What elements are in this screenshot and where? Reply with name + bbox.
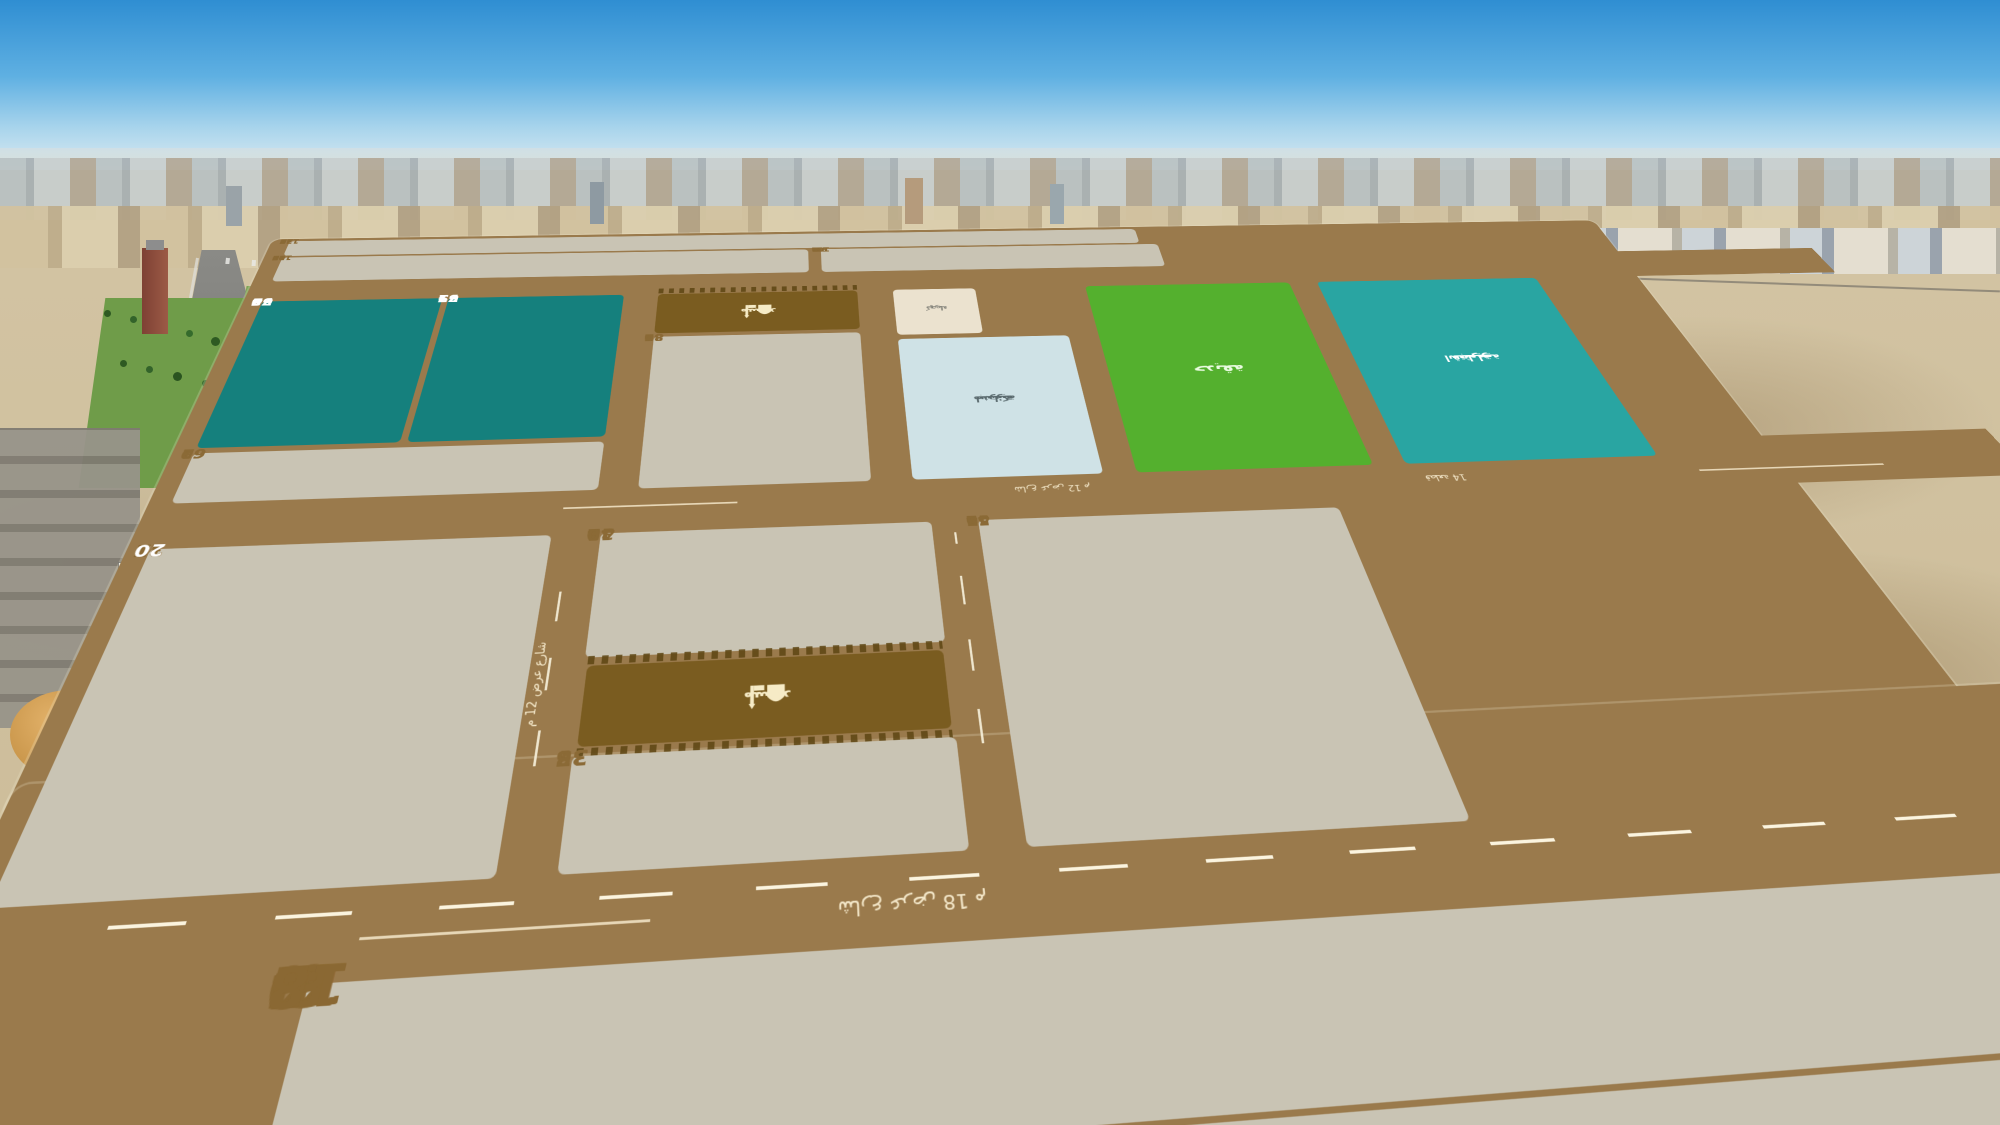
aerial-masterplan-image: 123124125126127128129130131132133134135 …: [0, 0, 2000, 1125]
school-plot[interactable]: مدرسةابتدائيةمشتركة: [898, 335, 1103, 479]
park-label: حديقة: [1191, 362, 1247, 378]
highrise-tower: [590, 182, 604, 224]
plot-block-19-34: 33343132293027282526232421221920: [0, 535, 552, 908]
mosque-label: مسجد: [743, 687, 791, 707]
masterplan-overlay: 123124125126127128129130131132133134135 …: [0, 218, 2000, 1125]
utility-plot[interactable]: محطةكهرباء: [893, 288, 983, 335]
plot-block-39-44: 434441423940: [585, 522, 945, 658]
highrise-tower: [1050, 184, 1064, 224]
highrise-tower: [226, 186, 242, 226]
plot-block-80-89: 89888786858483828180: [638, 332, 871, 488]
road-extension: [1586, 248, 1835, 277]
plot-number: 121: [271, 254, 293, 261]
sky: [0, 0, 2000, 170]
plot-number: 106: [812, 246, 830, 253]
plot-number: 40: [586, 524, 616, 543]
street-label: قطعة 14: [1423, 472, 1468, 483]
plot-number: 80: [644, 331, 665, 342]
trees-row: [104, 310, 111, 317]
mosque-plot[interactable]: مسجد: [654, 290, 860, 333]
plot-number: 65: [437, 292, 461, 304]
plot-number: 45: [965, 512, 991, 529]
mosque-label: مسجد: [740, 306, 776, 316]
plot-number: 135: [279, 238, 301, 245]
plot-number: 64: [249, 296, 276, 308]
mosque-plot[interactable]: مسجد: [577, 650, 952, 747]
plot-number: 62: [178, 446, 209, 461]
plot-number: 36: [554, 744, 590, 770]
road-extension: [1725, 429, 2000, 484]
highrise-tower: [905, 178, 923, 224]
